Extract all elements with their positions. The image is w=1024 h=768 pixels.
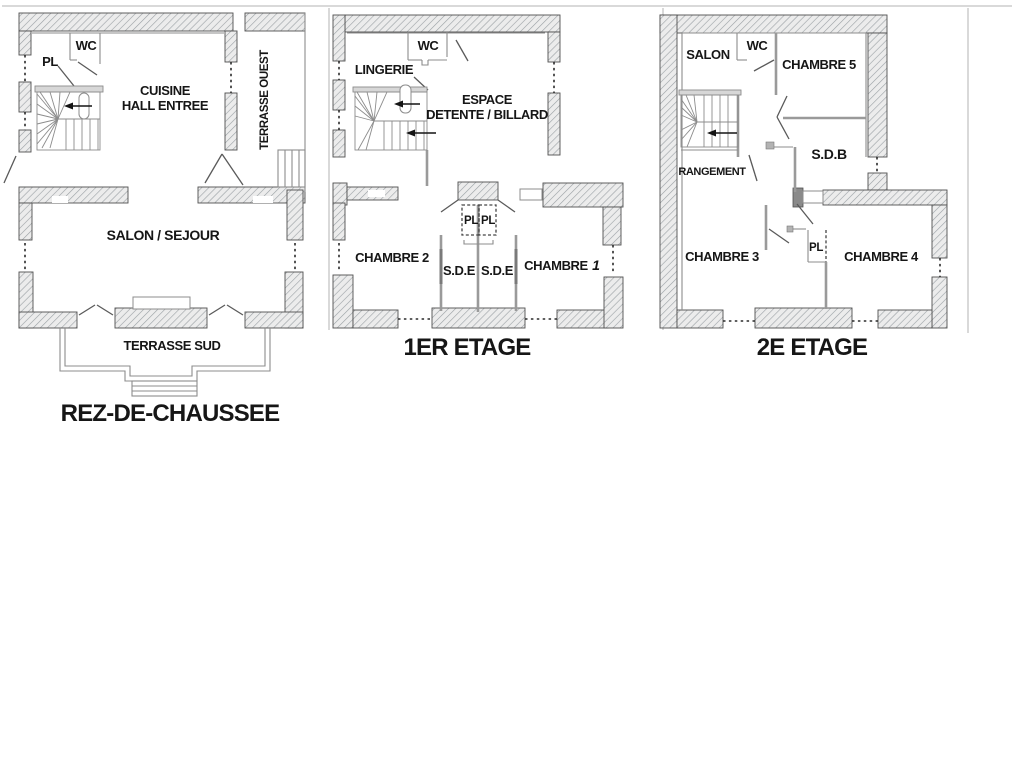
label-pl: PL [42, 54, 58, 69]
staircase-rdc [35, 86, 103, 150]
plan-title-etage1: 1ER ETAGE [403, 334, 531, 361]
label-chambre2: CHAMBRE 2 [355, 250, 429, 265]
label-chambre3: CHAMBRE 3 [685, 249, 759, 264]
label-lingerie: LINGERIE [355, 62, 414, 77]
label-wc: WC [418, 38, 440, 53]
label-salon-sejour: SALON / SEJOUR [107, 227, 220, 243]
pl-leader-line [58, 66, 74, 86]
staircase-etage2 [679, 90, 741, 147]
label-sde-left: S.D.E [443, 263, 476, 278]
window-openings-etage2 [723, 157, 940, 321]
label-chambre5: CHAMBRE 5 [782, 57, 856, 72]
label-chambre1-word: CHAMBRE [524, 258, 588, 273]
label-chambre4: CHAMBRE 4 [844, 249, 919, 264]
label-terrasse-ouest: TERRASSE OUEST [259, 50, 271, 150]
plan-premier-etage: LINGERIE WC ESPACE DETENTE / BILLARD PL … [333, 15, 623, 361]
label-terrasse-sud: TERRASSE SUD [123, 338, 220, 353]
label-cuisine-line1: CUISINE [140, 83, 191, 98]
stair-landing [35, 86, 103, 92]
label-chambre1-number: 1 [592, 257, 600, 273]
plan-rez-de-chaussee: PL WC CUISINE HALL ENTREE TERRASSE OUEST… [4, 13, 305, 427]
plan-deuxieme-etage: SALON WC CHAMBRE 5 S.D.B RANGEMENT CHAMB… [660, 15, 947, 361]
terrace-south-steps [132, 381, 197, 396]
plan-title-rdc: REZ-DE-CHAUSSEE [61, 400, 280, 427]
scan-artifacts [2, 6, 1012, 333]
label-salon: SALON [686, 47, 730, 62]
floor-plan-canvas: PL WC CUISINE HALL ENTREE TERRASSE OUEST… [0, 0, 1024, 768]
labels-rdc: PL WC CUISINE HALL ENTREE TERRASSE OUEST… [42, 38, 280, 427]
label-pl: PL [809, 242, 823, 254]
plan-title-etage2: 2E ETAGE [757, 334, 868, 361]
label-rangement: RANGEMENT [678, 166, 746, 178]
staircase-etage1 [353, 85, 436, 150]
label-pl-left: PL [464, 215, 478, 227]
stair-landing [353, 87, 427, 92]
label-wc: WC [747, 38, 769, 53]
stair-rail [400, 85, 411, 113]
stair-landing [679, 90, 741, 95]
label-espace-line1: ESPACE [462, 92, 513, 107]
label-sde-right: S.D.E [481, 263, 514, 278]
label-pl-right: PL [481, 215, 495, 227]
door-swings-etage2 [749, 60, 813, 243]
label-wc: WC [76, 38, 98, 53]
label-cuisine-line2: HALL ENTREE [122, 98, 209, 113]
label-sdb: S.D.B [811, 146, 847, 162]
label-espace-line2: DETENTE / BILLARD [426, 107, 548, 122]
planter [133, 297, 190, 309]
